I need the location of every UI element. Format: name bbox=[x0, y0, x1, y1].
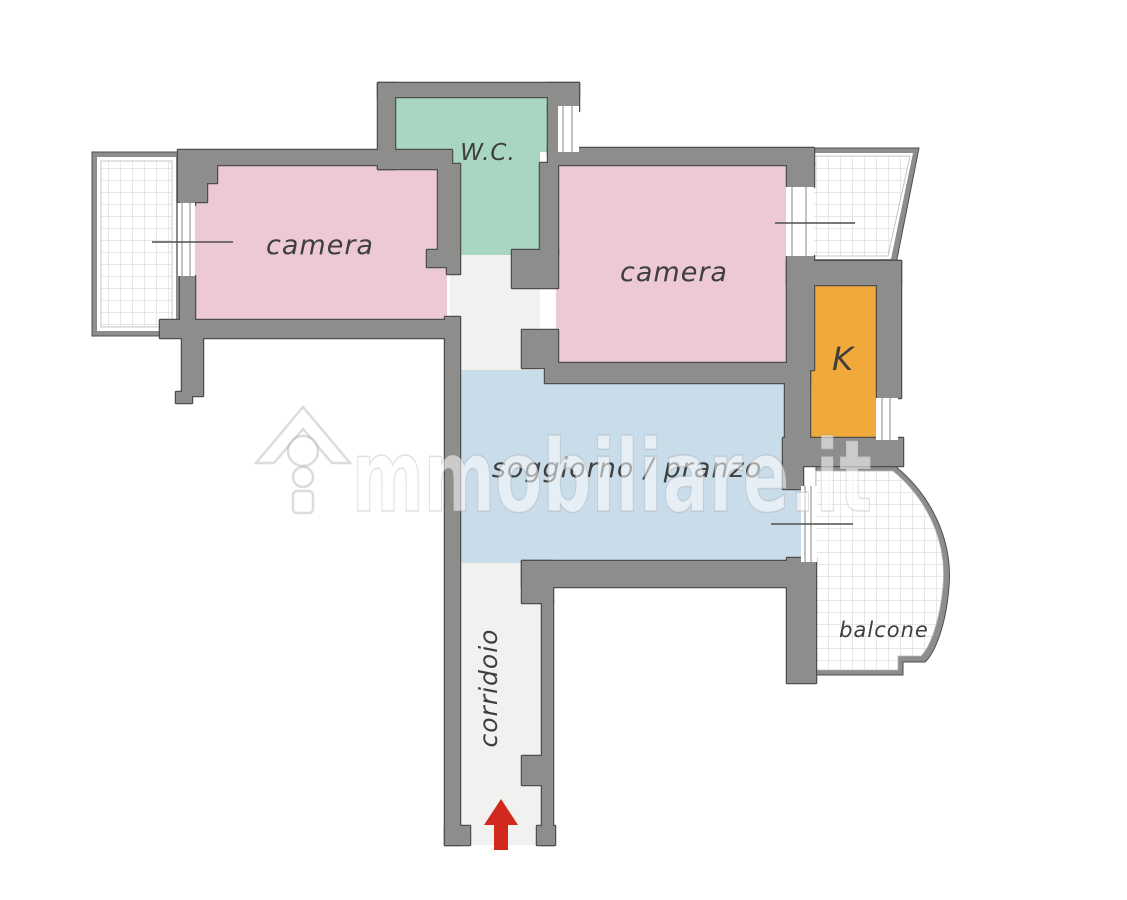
label-corridor: corridoio bbox=[474, 629, 503, 748]
label-camera-right: camera bbox=[620, 257, 728, 288]
balcony-grid-top-left bbox=[101, 161, 172, 327]
label-wc: W.C. bbox=[460, 140, 516, 166]
balcony-top-left bbox=[92, 152, 181, 336]
watermark-brand-text: mmobiliare.it bbox=[352, 418, 872, 535]
window-camera-right bbox=[786, 187, 814, 256]
label-kitchen: K bbox=[832, 340, 856, 378]
floor-plan-svg: camera W.C. camera K soggiorno / pranzo … bbox=[0, 0, 1127, 900]
window-kitchen bbox=[876, 398, 898, 440]
floor-plan-stage: camera W.C. camera K soggiorno / pranzo … bbox=[0, 0, 1127, 900]
label-camera-left: camera bbox=[266, 230, 374, 261]
label-balcony: balcone bbox=[839, 618, 929, 642]
window-camera-left bbox=[178, 203, 195, 276]
window-wc bbox=[558, 106, 579, 152]
